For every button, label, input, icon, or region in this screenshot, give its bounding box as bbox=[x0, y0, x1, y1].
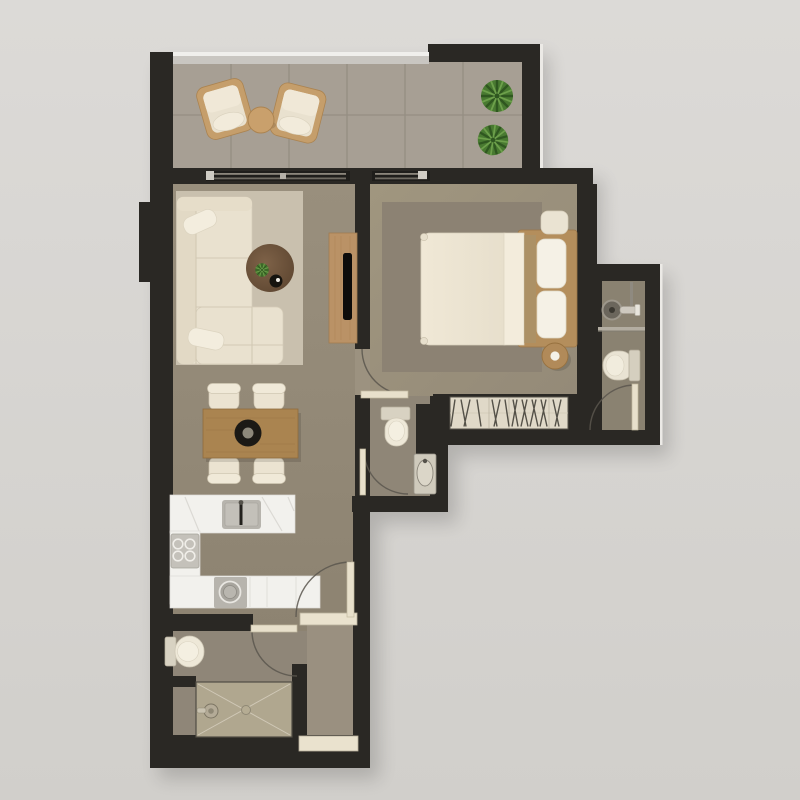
parapet-edge-highlight bbox=[540, 44, 543, 168]
potted-plant bbox=[481, 80, 513, 112]
bed-duvet bbox=[421, 233, 513, 345]
bed-sheet-fold bbox=[504, 233, 524, 345]
walk-in-shower bbox=[196, 682, 292, 737]
entry-door bbox=[347, 562, 354, 617]
table-plant bbox=[255, 263, 268, 276]
tv bbox=[343, 253, 352, 320]
toilet-seat bbox=[606, 355, 624, 376]
pillow bbox=[537, 291, 566, 338]
toilet-seat bbox=[178, 642, 199, 662]
ensuite-door bbox=[632, 384, 638, 430]
toilet-tank bbox=[165, 637, 176, 666]
sink-faucet-base bbox=[239, 500, 244, 505]
washer-drum bbox=[224, 586, 237, 599]
cooktop-panel bbox=[171, 534, 199, 568]
nightstand bbox=[541, 211, 568, 234]
floor-drain bbox=[242, 706, 251, 715]
toilet bbox=[603, 350, 640, 381]
toilet-tank bbox=[629, 350, 640, 381]
bathroom-stub-wall bbox=[150, 676, 196, 687]
under-counter-washing-machine bbox=[214, 577, 247, 608]
vanity-counter-shadow bbox=[598, 331, 645, 333]
slider-handle bbox=[206, 171, 214, 180]
faucet-column bbox=[630, 282, 633, 306]
bedroom-door bbox=[361, 391, 408, 398]
guest-wc-door bbox=[360, 449, 366, 495]
hallway-floor bbox=[307, 625, 353, 737]
bed-shadow-strip bbox=[524, 235, 536, 343]
dining-chair bbox=[208, 384, 241, 411]
slider-handle bbox=[418, 171, 427, 179]
faucet-handle bbox=[635, 305, 640, 316]
left-wall-pilaster bbox=[139, 202, 151, 282]
slider-handle bbox=[280, 173, 286, 179]
pillow bbox=[537, 239, 566, 288]
shower-mixer-center bbox=[208, 708, 214, 714]
living-balcony-slider bbox=[206, 171, 350, 181]
built-in-wardrobe bbox=[450, 397, 568, 429]
guest-wc-bottom-wall bbox=[352, 496, 448, 512]
toilet bbox=[165, 636, 204, 667]
balcony-right-wall bbox=[522, 62, 540, 168]
vanity-counter-edge bbox=[598, 327, 645, 331]
washbasin bbox=[414, 454, 436, 494]
ensuite-left-wall bbox=[577, 272, 602, 430]
faucet bbox=[620, 307, 637, 314]
entry-threshold bbox=[299, 736, 358, 751]
dining-chair bbox=[253, 384, 286, 411]
bathroom-divider-wall bbox=[292, 664, 307, 737]
bathroom-door bbox=[251, 625, 297, 632]
slider-glass-line bbox=[210, 178, 346, 180]
hallway-right-wall bbox=[353, 512, 370, 768]
cooktop-4-burners bbox=[171, 534, 199, 568]
media-console bbox=[329, 233, 357, 343]
stool-center bbox=[550, 351, 559, 360]
basin-bowl bbox=[417, 460, 433, 486]
slider-glass-line bbox=[210, 173, 346, 175]
decor-tray bbox=[270, 275, 283, 288]
sink-faucet bbox=[240, 504, 243, 525]
floor-plan-canvas bbox=[0, 0, 800, 800]
apartment-floor-plan bbox=[0, 0, 800, 800]
bed-post bbox=[420, 233, 427, 240]
glass-railing bbox=[173, 56, 429, 64]
shower-handle bbox=[197, 708, 206, 713]
right-outer-wall bbox=[645, 264, 660, 445]
bathroom-top-wall bbox=[150, 614, 253, 631]
right-wall-highlight bbox=[660, 264, 663, 445]
bedroom-bottom-wall bbox=[428, 430, 660, 445]
basin-faucet bbox=[423, 459, 427, 463]
bedroom-right-wall bbox=[577, 184, 597, 272]
toilet-seat bbox=[389, 421, 405, 441]
kitchen-sink bbox=[222, 500, 261, 529]
railing-highlight bbox=[173, 52, 429, 56]
guest-wc-partition bbox=[416, 404, 432, 456]
double-bed bbox=[420, 230, 577, 347]
round-side-table bbox=[248, 107, 274, 133]
sofa-armrest bbox=[177, 197, 252, 211]
decor-tray-dot bbox=[276, 278, 280, 282]
slider-track bbox=[206, 171, 350, 181]
centerpiece-bowl-inner bbox=[243, 428, 254, 439]
basin-drain bbox=[609, 307, 615, 313]
bed-post bbox=[420, 337, 427, 344]
round-coffee-table bbox=[246, 244, 294, 292]
bedroom-balcony-slider bbox=[372, 171, 430, 181]
balcony-parapet-top bbox=[428, 44, 540, 62]
